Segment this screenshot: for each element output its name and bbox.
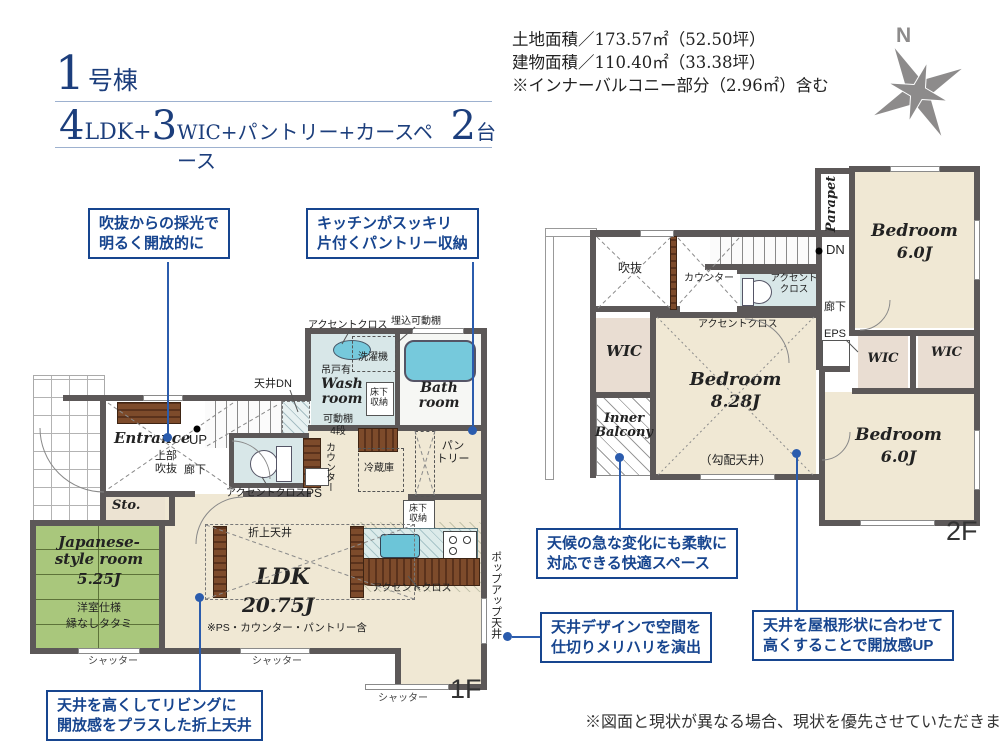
stairs-2f bbox=[710, 236, 818, 266]
page-title: 1 号棟 bbox=[55, 46, 138, 101]
japanese-room-label: Japanese-style room 5.25J bbox=[36, 534, 162, 588]
spec-num-2: 3 bbox=[152, 103, 177, 149]
eps-label: EPS bbox=[824, 328, 846, 341]
accent-cloth-label: アクセントクロス bbox=[372, 583, 452, 595]
accent-cloth-label: アクセントクロス bbox=[698, 319, 778, 331]
japanese-room-notes: 洋室仕様 縁なしタタミ bbox=[36, 602, 162, 630]
window bbox=[640, 230, 674, 237]
ldk-label: LDK bbox=[256, 565, 310, 589]
void-label: 吹抜 bbox=[618, 262, 642, 276]
building-area: 建物面積／110.40㎡（33.38坪） bbox=[512, 51, 829, 74]
callout-dot bbox=[503, 632, 512, 641]
upper-void-label: 上部吹抜 bbox=[155, 450, 177, 475]
washer-label: 洗濯機 bbox=[358, 352, 388, 364]
underfloor-storage-label: 床下収納 bbox=[405, 503, 431, 524]
wall bbox=[169, 494, 175, 526]
spec-num-3: 2 bbox=[451, 103, 476, 149]
callout-dot bbox=[792, 449, 801, 458]
shutter-label: シャッター bbox=[378, 693, 428, 705]
wall bbox=[816, 236, 822, 370]
spec-text-1: LDK+ bbox=[84, 120, 151, 145]
inner-balcony-label: InnerBalcony bbox=[592, 412, 656, 441]
wall bbox=[100, 398, 106, 526]
toilet-bowl bbox=[250, 450, 278, 478]
title-suffix: 号棟 bbox=[88, 61, 138, 97]
storage-label: Sto. bbox=[112, 499, 140, 513]
spec-text-3: 台 bbox=[476, 116, 496, 145]
wall bbox=[229, 433, 234, 488]
callout-line bbox=[167, 262, 169, 438]
eps-box bbox=[822, 340, 850, 368]
callout-line bbox=[796, 454, 798, 610]
wall bbox=[596, 306, 680, 312]
pantry-label: パントリー bbox=[436, 440, 470, 465]
wall bbox=[852, 330, 980, 336]
window bbox=[974, 430, 980, 490]
hanging-cabinet-label: 吊戸有 bbox=[321, 365, 351, 377]
accent-cloth-label: アクセントクロス bbox=[308, 320, 388, 332]
rule-top bbox=[55, 101, 492, 102]
window bbox=[974, 220, 980, 280]
wall bbox=[229, 433, 309, 438]
callout-dot bbox=[468, 426, 477, 435]
ldk-size-label: 20.75J bbox=[242, 594, 314, 616]
bedroom-main-label: Bedroom 8.28J bbox=[655, 370, 816, 411]
window bbox=[412, 328, 464, 334]
wall bbox=[593, 392, 656, 398]
plan-spec: 4 LDK+ 3 WIC+パントリー+カースペース 2 台 bbox=[59, 103, 496, 147]
coffered-ceiling-label: 折上天井 bbox=[248, 527, 292, 540]
recessed-shelf-label: 埋込可動棚 bbox=[391, 316, 441, 328]
window bbox=[143, 395, 183, 401]
site-info: 土地面積／173.57㎡（52.50坪） 建物面積／110.40㎡（33.38坪… bbox=[512, 28, 829, 97]
floorplan-page: 1 号棟 4 LDK+ 3 WIC+パントリー+カースペース 2 台 土地面積／… bbox=[0, 0, 1000, 751]
shutter-label: シャッター bbox=[88, 656, 138, 668]
wall bbox=[910, 332, 916, 392]
coffered-post bbox=[350, 526, 364, 598]
callout-ceiling-design: 天井デザインで空間を仕切りメリハリを演出 bbox=[540, 612, 712, 663]
spec-text-2: WIC+パントリー+カースペース bbox=[177, 116, 451, 174]
callout-inner-balcony: 天候の急な変化にも柔軟に対応できる快適スペース bbox=[536, 528, 738, 579]
toilet-tank bbox=[276, 446, 292, 482]
window bbox=[481, 598, 487, 644]
callout-dot bbox=[195, 593, 204, 602]
callout-line bbox=[199, 598, 201, 691]
shoe-cabinet bbox=[117, 402, 181, 424]
window bbox=[890, 166, 940, 172]
wall bbox=[820, 366, 850, 372]
window bbox=[700, 474, 775, 480]
accent-cloth-2f-toilet: アクセントクロス bbox=[768, 274, 820, 296]
refrigerator-label: 冷蔵庫 bbox=[364, 463, 394, 475]
washroom-label: Washroom bbox=[316, 377, 368, 408]
shutter-label: シャッター bbox=[252, 656, 302, 668]
callout-void-light: 吹抜からの採光で明るく開放的に bbox=[88, 208, 230, 259]
parapet-label: Parapet bbox=[825, 169, 841, 239]
callout-dot bbox=[163, 433, 172, 442]
title-number: 1 bbox=[55, 46, 85, 101]
floor-label-1f: 1F bbox=[450, 674, 482, 705]
shutter-window bbox=[78, 648, 140, 654]
window bbox=[860, 520, 935, 526]
counter-label: カウンター bbox=[323, 442, 335, 504]
callout-line bbox=[619, 458, 621, 529]
compass-icon bbox=[856, 26, 980, 150]
eaves-line bbox=[545, 228, 554, 480]
ldk-note-label: ※PS・カウンター・パントリー含 bbox=[207, 622, 367, 634]
wall bbox=[590, 230, 852, 237]
wic-small-1-label: WIC bbox=[858, 352, 908, 366]
shutter-window bbox=[240, 648, 310, 654]
wall bbox=[737, 306, 822, 312]
shutter-window bbox=[365, 684, 449, 690]
wall bbox=[650, 312, 822, 318]
stove bbox=[443, 531, 477, 559]
floor-label-2f: 2F bbox=[946, 516, 978, 547]
hallway-label: 廊下 bbox=[184, 464, 206, 477]
stairs-dn-label: DN bbox=[826, 243, 845, 258]
callout-pantry: キッチンがスッキリ片付くパントリー収納 bbox=[306, 208, 479, 259]
movable-shelf-label: 可動棚4段 bbox=[316, 414, 360, 437]
wic-left-label: WIC bbox=[596, 343, 652, 360]
wall bbox=[590, 230, 596, 315]
entrance-label: Entrance bbox=[114, 430, 190, 447]
wall bbox=[63, 395, 311, 401]
pipe-space-label: PS bbox=[306, 487, 322, 501]
callout-dot bbox=[615, 453, 624, 462]
callout-line bbox=[512, 636, 540, 638]
hallway-2f-label: 廊下 bbox=[824, 301, 846, 314]
accent-cloth-label: アクセントクロス bbox=[226, 488, 306, 500]
bedroom-tr-label: Bedroom 6.0J bbox=[855, 222, 974, 261]
pantry-shelves bbox=[415, 431, 435, 497]
popup-ceiling-label: ポップアップ天井 bbox=[489, 551, 502, 647]
wall bbox=[705, 264, 818, 270]
disclaimer: ※図面と現状が異なる場合、現状を優先させていただきます。 bbox=[585, 714, 1000, 732]
toilet-tank-2f bbox=[742, 278, 754, 306]
wall bbox=[815, 168, 821, 236]
land-area: 土地面積／173.57㎡（52.50坪） bbox=[512, 28, 829, 51]
callout-sloped-ceiling: 天井を屋根形状に合わせて高くすることで開放感UP bbox=[752, 610, 954, 661]
bathtub bbox=[404, 340, 476, 382]
wall bbox=[305, 328, 311, 401]
spec-num-1: 4 bbox=[59, 103, 84, 149]
coffered-post bbox=[213, 526, 227, 598]
wic-small-2-label: WIC bbox=[918, 346, 975, 360]
inner-balcony-note: ※インナーバルコニー部分（2.96㎡）含む bbox=[512, 74, 829, 97]
bathroom-label: Bathroom bbox=[408, 381, 470, 412]
pillar bbox=[670, 236, 677, 310]
bedroom-br-label: Bedroom 6.0J bbox=[823, 426, 974, 465]
callout-coffered-ceiling: 天井を高くしてリビングに開放感をプラスした折上天井 bbox=[46, 690, 263, 741]
ceiling-dn-label: 天井DN bbox=[254, 378, 292, 391]
underfloor-storage-label: 床下収納 bbox=[368, 387, 390, 408]
callout-line bbox=[472, 262, 474, 426]
stairs-up-label: UP bbox=[189, 433, 207, 448]
rule-bottom bbox=[55, 147, 492, 148]
wall bbox=[103, 491, 195, 497]
counter-label-2f: カウンター bbox=[684, 273, 734, 285]
